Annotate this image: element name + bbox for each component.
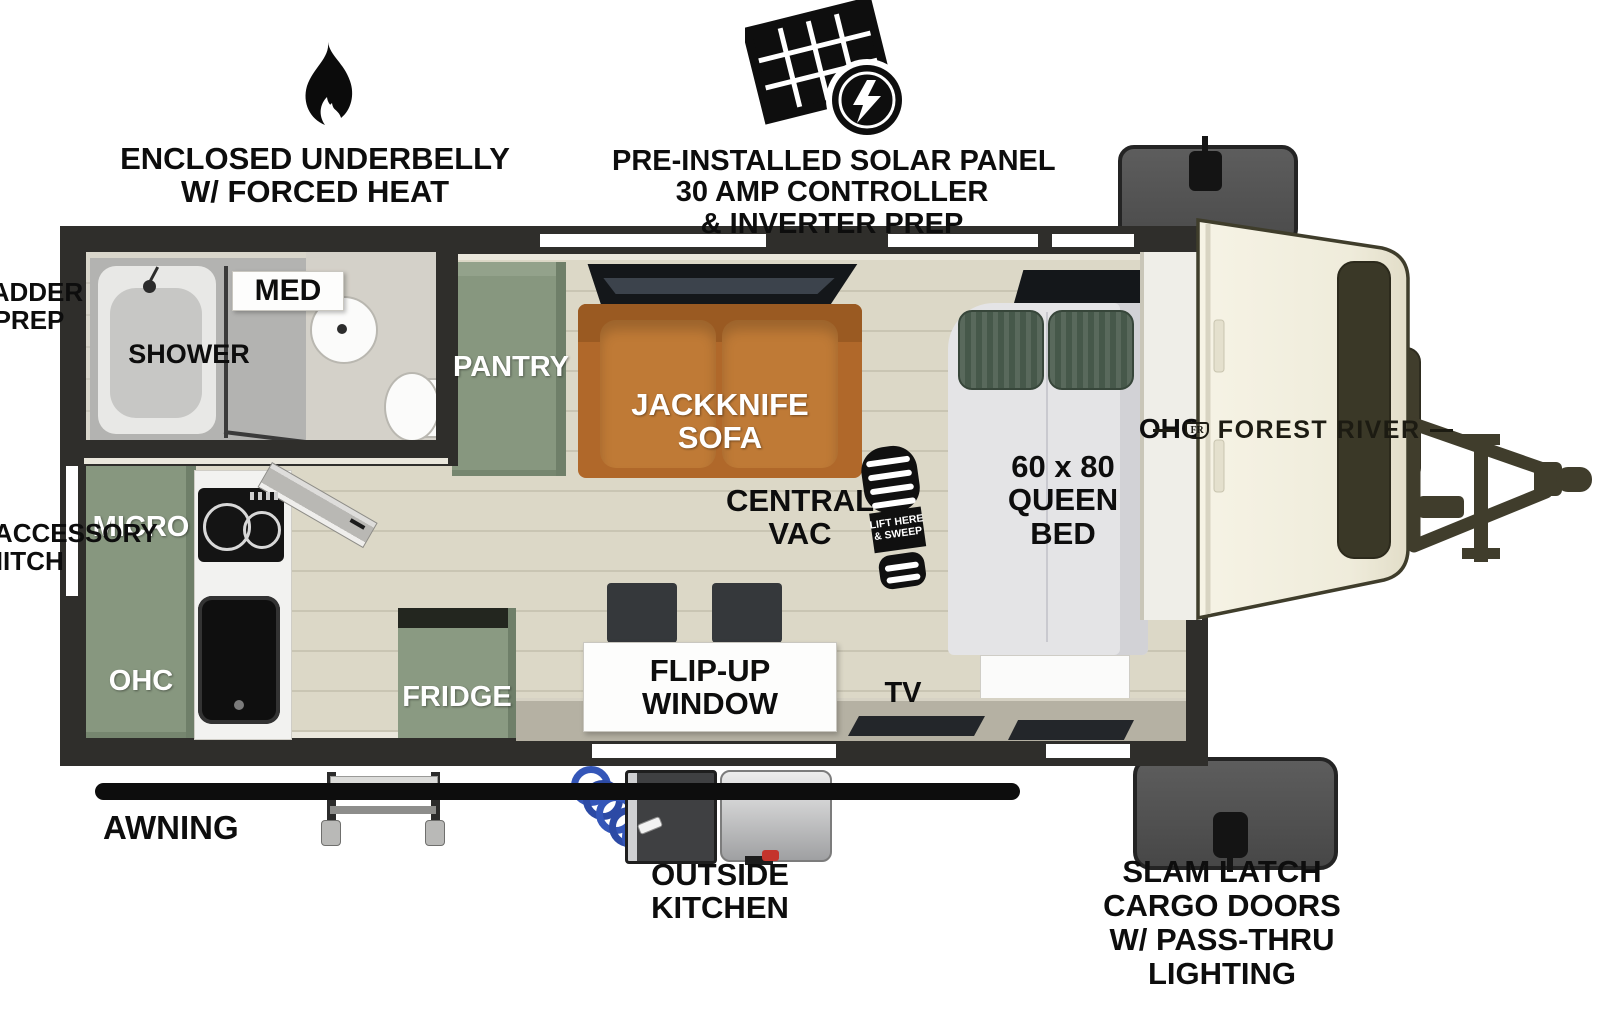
- solar-line3: & INVERTER PREP: [612, 209, 1052, 240]
- ohc-rear-label: OHC: [76, 666, 206, 698]
- solar-line1: PRE-INSTALLED SOLAR PANEL: [612, 146, 1052, 177]
- med-label: MED: [255, 275, 322, 307]
- flip-up-window-callout: FLIP-UP WINDOW: [583, 642, 837, 732]
- kitchen-faucet: [234, 700, 244, 710]
- tv-label: TV: [868, 678, 938, 709]
- entry-step-foot: [425, 820, 445, 846]
- logo-rule: [1430, 429, 1453, 432]
- shower-label: SHOWER: [109, 340, 269, 372]
- solar-panel-icon: [745, 0, 925, 148]
- awning-label: AWNING: [103, 810, 253, 846]
- cooktop-burner: [243, 511, 281, 549]
- logo-rule: [1153, 429, 1176, 432]
- hitch-jack-mount: [1418, 496, 1464, 518]
- fr-crest-icon: FR: [1185, 422, 1208, 439]
- bed-line2: QUEEN: [973, 483, 1153, 516]
- cap-trim: [1214, 320, 1224, 372]
- brand-logo: FR FOREST RIVER: [1153, 408, 1453, 452]
- cargo-doors-line4: LIGHTING: [1052, 957, 1392, 991]
- central-vac-label: CENTRAL VAC: [700, 484, 900, 551]
- bathroom-wall-lining: [84, 458, 448, 464]
- underbelly-line2: W/ FORCED HEAT: [65, 175, 565, 208]
- tv-unit: [848, 716, 985, 736]
- hitch-jack-post: [1474, 440, 1488, 562]
- awning-bar: [95, 783, 1020, 800]
- bed-line1: 60 x 80: [973, 450, 1153, 483]
- sofa-window-glass: [596, 278, 842, 294]
- ladder-prep-line2: PREP: [0, 306, 89, 334]
- cargo-door-bottom-latch: [1213, 812, 1248, 858]
- cargo-doors-line2: CARGO DOORS: [1052, 889, 1392, 923]
- hitch-coupler-ball: [1556, 467, 1592, 492]
- floorplan-canvas: ENCLOSED UNDERBELLY W/ FORCED HEAT PRE-I…: [0, 0, 1600, 1017]
- dinette-stool: [607, 583, 677, 643]
- bed-line3: BED: [973, 517, 1153, 550]
- fridge-label: FRIDGE: [398, 682, 516, 713]
- window-slit: [1046, 744, 1130, 758]
- rear-hitch-line2: HITCH: [0, 547, 134, 575]
- media-shelf: [1008, 720, 1134, 740]
- cargo-door-top-latch: [1189, 151, 1222, 191]
- bathroom-partition: [436, 252, 458, 444]
- callout-ladder-prep: LADDER PREP: [0, 278, 89, 336]
- cargo-doors-line3: W/ PASS-THRU: [1052, 923, 1392, 957]
- flip-window-line1: FLIP-UP: [650, 654, 771, 687]
- bed-label: 60 x 80 QUEEN BED: [973, 450, 1153, 550]
- central-vac-line2: VAC: [700, 517, 900, 550]
- outside-kitchen-line2: KITCHEN: [560, 891, 880, 924]
- solar-line2: 30 AMP CONTROLLER: [612, 177, 1052, 208]
- central-vac-line1: CENTRAL: [700, 484, 900, 517]
- sofa-label: JACKKNIFE SOFA: [588, 388, 852, 455]
- flip-window-line2: WINDOW: [642, 687, 778, 720]
- hitch-coupler: [1534, 462, 1562, 496]
- cargo-door-top-latch-stem: [1202, 136, 1208, 152]
- door-handle: [350, 518, 366, 529]
- cargo-doors-line1: SLAM LATCH: [1052, 855, 1392, 889]
- ladder-prep-line1: LADDER: [0, 278, 89, 306]
- flame-icon: [299, 42, 355, 136]
- fridge: [398, 608, 516, 738]
- sofa-line2: SOFA: [588, 421, 852, 454]
- pantry-label: PANTRY: [416, 352, 606, 384]
- callout-outside-kitchen: OUTSIDE KITCHEN: [560, 858, 880, 925]
- bed-pillow: [958, 310, 1044, 390]
- bed-pillow: [1048, 310, 1134, 390]
- outside-kitchen-line1: OUTSIDE: [560, 858, 880, 891]
- hitch-jack-crossbar: [1462, 548, 1500, 559]
- brand-name: FOREST RIVER: [1218, 416, 1421, 445]
- callout-enclosed-underbelly: ENCLOSED UNDERBELLY W/ FORCED HEAT: [65, 142, 565, 209]
- cooktop-controls: [250, 492, 278, 500]
- window-slit: [592, 744, 836, 758]
- callout-solar: PRE-INSTALLED SOLAR PANEL 30 AMP CONTROL…: [612, 146, 1052, 240]
- callout-cargo-doors: SLAM LATCH CARGO DOORS W/ PASS-THRU LIGH…: [1052, 855, 1392, 991]
- entry-step-foot: [321, 820, 341, 846]
- underbelly-line1: ENCLOSED UNDERBELLY: [65, 142, 565, 175]
- hitch-jack-crossbar: [1462, 434, 1500, 445]
- bath-faucet: [337, 324, 347, 334]
- med-cabinet: MED: [232, 271, 344, 311]
- window-slit: [1052, 234, 1134, 247]
- callout-rear-accessory-hitch: REAR ACCESSORY HITCH: [0, 519, 134, 575]
- dinette-stool: [712, 583, 782, 643]
- sofa-line1: JACKKNIFE: [588, 388, 852, 421]
- rear-hitch-line1: REAR ACCESSORY: [0, 519, 134, 547]
- entry-step-tread: [330, 806, 436, 814]
